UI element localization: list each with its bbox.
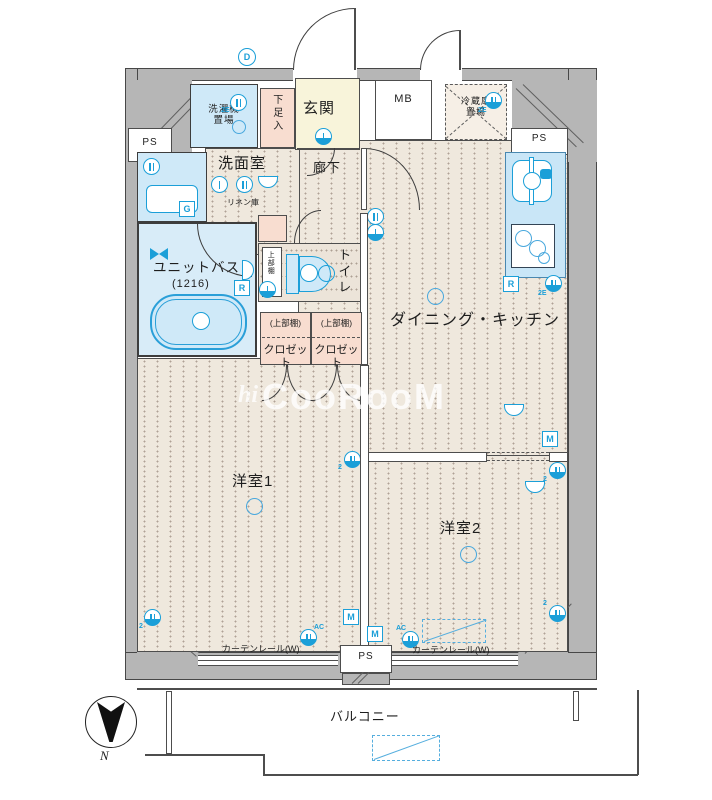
entrance-label: 玄関	[303, 100, 335, 118]
bedroom1-label: 洋室1	[232, 473, 273, 491]
watermark-prefix: hi	[238, 382, 258, 409]
bedroom2-label: 洋室2	[440, 520, 481, 538]
toilet-lid-icon	[318, 265, 335, 282]
outlet-icon	[143, 158, 160, 175]
meter-box	[375, 80, 432, 140]
upper-shelf-label: (上部棚)	[260, 318, 311, 328]
outlet-icon	[367, 224, 384, 241]
vanity-drain-icon: G	[179, 201, 195, 217]
outlet-icon	[367, 208, 384, 225]
balcony-outer-edge	[145, 754, 264, 756]
outlet-icon	[236, 176, 253, 193]
curtain-rail-label: カーテンレール(W)	[222, 644, 300, 655]
mb-door-arc	[420, 30, 460, 70]
upper-shelf-label: (上部棚)	[311, 318, 362, 328]
symbol-ac: AC	[314, 624, 324, 631]
floor-plan: PS 洗濯機 置場 下足入 玄関 MB 冷蔵庫 置場 PS D G ユニットバス…	[0, 0, 712, 800]
balcony-inner-edge	[137, 688, 597, 690]
entrance-door-leaf	[354, 8, 356, 70]
toilet-shelf-label: 上部棚	[266, 251, 274, 275]
hallway-label: 廊下	[313, 160, 341, 175]
shoe-box-label: 下足入	[270, 94, 282, 133]
symbol-2e: 2E	[478, 107, 487, 114]
drain-icon	[232, 120, 246, 134]
switch-icon: M	[343, 609, 359, 625]
toilet-seat-icon	[300, 264, 318, 282]
ceiling-light-icon	[460, 546, 477, 563]
unit-bath-size-label: (1216)	[172, 278, 210, 291]
outlet-icon	[549, 462, 566, 479]
range-switch-icon: R	[503, 276, 519, 292]
watermark: CooRooM	[262, 376, 446, 418]
washroom-label: 洗面室	[218, 155, 266, 173]
dk-door-leaf	[361, 148, 367, 210]
window-glass-line	[198, 660, 338, 661]
doorbell-icon: D	[238, 48, 256, 66]
balcony-partition-right	[573, 691, 579, 721]
wall-dk-bedroom2	[363, 452, 487, 462]
sink-drain-icon	[523, 172, 541, 190]
outlet-icon	[485, 92, 502, 109]
sliding-opening-dash	[487, 452, 549, 453]
toilet-tank	[286, 254, 299, 294]
bath-drain-icon	[192, 312, 210, 330]
symbol-count: 2	[543, 600, 547, 607]
window-glass-line	[388, 660, 518, 661]
bath-switch-icon: R	[234, 280, 250, 296]
ceiling-light-icon	[427, 288, 444, 305]
balcony-label: バルコニー	[330, 709, 400, 724]
entrance-door-arc	[293, 8, 355, 70]
balcony-partition-left	[166, 691, 172, 754]
ceiling-light-icon	[246, 498, 263, 515]
ps-label: PS	[511, 133, 568, 145]
outlet-icon	[545, 275, 562, 292]
closet-shelf-line	[262, 337, 360, 338]
outlet-icon	[344, 451, 361, 468]
switch-icon: M	[367, 626, 383, 642]
outlet-icon	[259, 281, 276, 298]
balcony-outer-edge	[263, 774, 638, 776]
north-label: N	[100, 748, 110, 763]
linen-label: リネン庫	[227, 198, 259, 207]
kettle-icon	[540, 169, 552, 179]
symbol-count: 2	[139, 623, 143, 630]
linen-cabinet	[258, 215, 287, 242]
symbol-count: 2	[338, 464, 342, 471]
outlet-icon	[144, 609, 161, 626]
outlet-icon	[315, 128, 332, 145]
symbol-2e: 2E	[221, 107, 230, 114]
outlet-icon	[549, 605, 566, 622]
mb-door-leaf	[459, 30, 461, 70]
symbol-2e: 2E	[538, 290, 547, 297]
toilet-label: トイレ	[336, 248, 351, 296]
switch-icon: M	[542, 431, 558, 447]
outlet-icon	[230, 94, 247, 111]
burner-icon	[538, 252, 550, 264]
sliding-opening-dash	[487, 460, 549, 461]
wall-stub	[549, 452, 568, 462]
symbol-ac: AC	[396, 625, 406, 632]
ps-label: PS	[128, 137, 172, 149]
ac-outlet-icon	[300, 629, 317, 646]
ps-label: PS	[340, 651, 392, 663]
meter-box-label: MB	[375, 93, 432, 106]
dining-kitchen-label: ダイニング・キッチン	[390, 312, 560, 331]
balcony-step	[263, 754, 265, 775]
outlet-icon	[211, 176, 228, 193]
balcony-right-edge	[637, 690, 639, 775]
